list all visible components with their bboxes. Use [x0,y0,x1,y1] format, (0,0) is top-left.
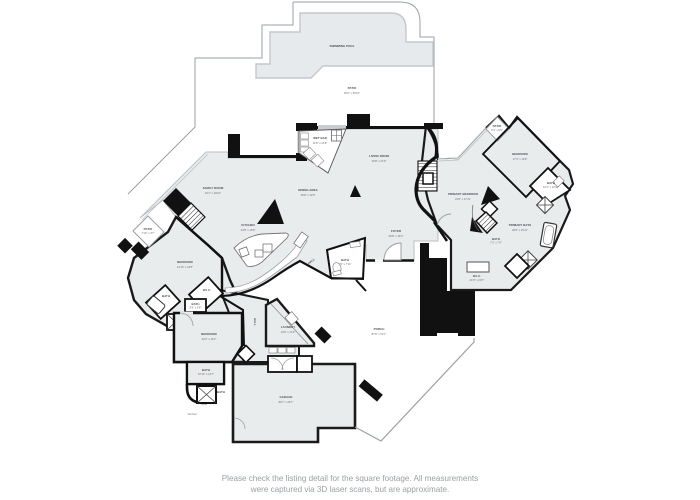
svg-text:21'8" x 20'7": 21'8" x 20'7" [470,278,485,282]
svg-text:W.I.C.: W.I.C. [473,274,481,278]
svg-text:1st floor: 1st floor [187,412,197,416]
svg-text:24'8" x 17'11": 24'8" x 17'11" [455,197,471,201]
svg-text:PORCH: PORCH [374,327,385,331]
svg-text:LAUNDRY: LAUNDRY [281,325,295,329]
svg-text:PATIO: PATIO [493,124,502,128]
svg-text:FOYER: FOYER [391,229,402,233]
svg-text:10'2" x 10'11": 10'2" x 10'11" [543,185,559,189]
svg-text:20'3" x 16'2": 20'3" x 16'2" [202,337,217,341]
svg-text:87'8" x 52'7": 87'8" x 52'7" [372,332,387,336]
svg-text:BATH: BATH [202,368,210,372]
svg-text:W.I.C.: W.I.C. [203,288,211,292]
svg-text:DINING AREA: DINING AREA [298,188,318,192]
svg-text:WET BAR: WET BAR [313,136,328,140]
svg-text:BATH: BATH [162,294,170,298]
svg-text:GARAGE: GARAGE [280,395,293,399]
svg-text:LIVING ROOM: LIVING ROOM [369,154,390,158]
svg-text:7'10" x 4'7": 7'10" x 4'7" [141,231,154,235]
svg-text:BATH: BATH [492,237,500,241]
svg-text:BEDROOM: BEDROOM [512,152,528,156]
svg-text:20'8" x 15'11": 20'8" x 15'11" [512,228,528,232]
svg-text:36'0" x 36'10": 36'0" x 36'10" [344,91,360,95]
svg-text:36'8" x 19'9": 36'8" x 19'9" [301,193,316,197]
svg-text:PRIMARY BATH: PRIMARY BATH [509,223,531,227]
svg-text:13'9" x 14'9": 13'9" x 14'9" [281,330,296,334]
svg-text:BATH: BATH [217,390,225,394]
svg-text:20'8" x 16'3": 20'8" x 16'3" [389,234,404,238]
svg-text:BEDROOM: BEDROOM [201,332,217,336]
svg-text:BATH: BATH [341,258,349,262]
svg-text:KITCHEN: KITCHEN [241,223,254,227]
svg-text:BEDROOM: BEDROOM [177,260,193,264]
svg-text:86'7" x 26'7": 86'7" x 26'7" [279,400,294,404]
svg-text:PATIO: PATIO [348,86,357,90]
svg-text:HALL: HALL [253,318,257,326]
svg-text:SWIMMING POOL: SWIMMING POOL [329,44,354,48]
svg-text:FAMILY ROOM: FAMILY ROOM [203,186,224,190]
svg-text:BATH: BATH [191,302,199,306]
svg-text:11'8" x 14'8": 11'8" x 14'8" [313,141,328,145]
svg-text:6'4" x 9'9": 6'4" x 9'9" [491,128,503,132]
svg-text:BATH: BATH [547,181,555,185]
svg-text:24'8" x 19'9": 24'8" x 19'9" [241,228,256,232]
svg-text:14'10" x 24'5": 14'10" x 24'5" [177,265,193,269]
svg-text:26'8" x 21'9": 26'8" x 21'9" [372,159,387,163]
svg-text:PATIO: PATIO [144,227,153,231]
svg-text:7'2" x 7'4": 7'2" x 7'4" [490,241,502,245]
svg-text:10'10" x 14'7": 10'10" x 14'7" [198,372,214,376]
svg-text:5'9" x 5'8": 5'9" x 5'8" [190,306,202,310]
svg-text:17'4" x 13'8": 17'4" x 13'8" [513,157,528,161]
svg-text:22'1" x 19'10": 22'1" x 19'10" [205,191,221,195]
svg-text:PRIMARY BEDROOM: PRIMARY BEDROOM [448,192,478,196]
